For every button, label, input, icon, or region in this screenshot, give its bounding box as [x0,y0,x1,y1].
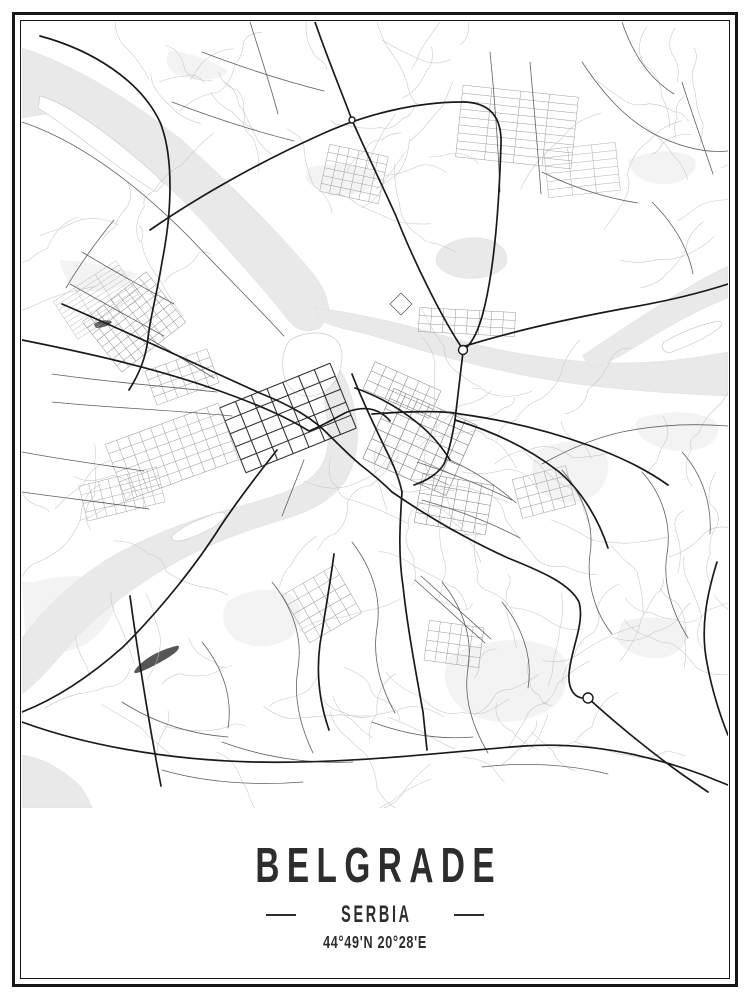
poster-coordinates: 44°49'N 20°28'E [22,934,728,952]
map-canvas [22,22,728,808]
city-name: BELGRADE [248,842,502,891]
country-name: SERBIA [338,903,411,927]
belgrade-street-map [22,22,728,808]
subtitle-right-dash [454,914,484,917]
poster-title: BELGRADE [22,842,728,891]
poster-subtitle-row: SERBIA [22,902,728,928]
map-poster: BELGRADE SERBIA 44°49'N 20°28'E [0,0,750,1000]
poster-text-block: BELGRADE SERBIA 44°49'N 20°28'E [22,808,728,978]
coordinates-text: 44°49'N 20°28'E [323,934,428,952]
subtitle-left-dash [266,914,296,917]
